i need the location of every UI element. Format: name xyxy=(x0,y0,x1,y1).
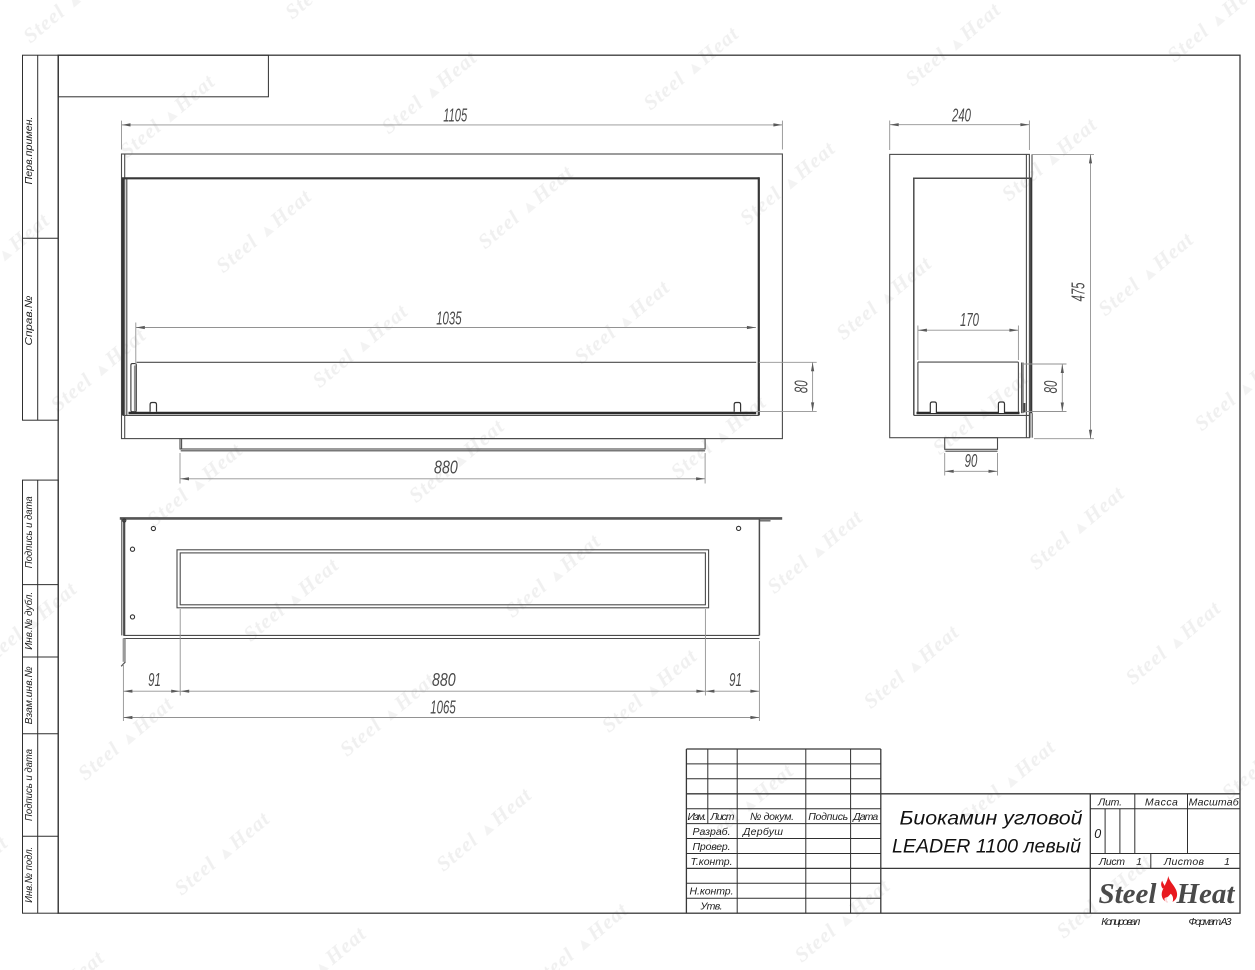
svg-text:Лист: Лист xyxy=(1098,856,1125,868)
svg-text:Масса: Масса xyxy=(1145,796,1178,808)
svg-text:Heat: Heat xyxy=(1176,878,1236,910)
svg-text:Подпись и дата: Подпись и дата xyxy=(23,496,35,568)
svg-text:Разраб.: Разраб. xyxy=(693,826,731,838)
svg-text:1035: 1035 xyxy=(436,308,462,328)
svg-text:91: 91 xyxy=(729,670,742,690)
svg-text:Изм.: Изм. xyxy=(688,811,707,823)
svg-text:Перв.примен.: Перв.примен. xyxy=(23,117,35,185)
svg-text:№ докум.: № докум. xyxy=(750,811,794,823)
svg-text:Формат А3: Формат А3 xyxy=(1189,916,1232,928)
svg-text:Дербуш: Дербуш xyxy=(742,826,783,838)
svg-text:Масштаб: Масштаб xyxy=(1189,796,1240,808)
svg-text:Утв.: Утв. xyxy=(700,901,723,913)
svg-text:91: 91 xyxy=(148,670,161,690)
svg-text:880: 880 xyxy=(434,457,458,477)
svg-text:Подпись: Подпись xyxy=(808,811,848,823)
svg-text:Биокамин угловой: Биокамин угловой xyxy=(900,808,1083,830)
svg-text:Т.контр.: Т.контр. xyxy=(691,856,733,868)
svg-text:475: 475 xyxy=(1069,282,1089,302)
svg-text:Steel: Steel xyxy=(1099,878,1158,910)
svg-text:240: 240 xyxy=(951,106,971,126)
svg-text:LEADER 1100 левый: LEADER 1100 левый xyxy=(892,835,1081,857)
svg-text:Подпись и дата: Подпись и дата xyxy=(23,749,35,821)
svg-text:1105: 1105 xyxy=(443,106,468,126)
svg-text:Взам.инв.№: Взам.инв.№ xyxy=(23,666,35,724)
svg-text:1: 1 xyxy=(1224,856,1230,868)
svg-text:Лист: Лист xyxy=(710,811,735,823)
svg-text:Листов: Листов xyxy=(1163,856,1205,868)
svg-text:Справ.№: Справ.№ xyxy=(23,296,35,346)
svg-text:Лит.: Лит. xyxy=(1097,796,1122,808)
svg-text:Инв.№ подл.: Инв.№ подл. xyxy=(23,847,35,903)
svg-text:80: 80 xyxy=(1041,381,1061,394)
svg-text:Провер.: Провер. xyxy=(693,841,731,853)
svg-text:Копировал: Копировал xyxy=(1101,916,1140,928)
svg-text:90: 90 xyxy=(965,451,978,471)
svg-text:880: 880 xyxy=(432,670,456,690)
svg-text:170: 170 xyxy=(960,310,979,330)
svg-text:Н.контр.: Н.контр. xyxy=(690,886,734,898)
svg-text:1065: 1065 xyxy=(430,698,456,718)
svg-text:Дата: Дата xyxy=(852,811,878,823)
svg-text:1: 1 xyxy=(1136,856,1142,868)
svg-text:0: 0 xyxy=(1094,827,1101,841)
svg-text:80: 80 xyxy=(792,380,812,393)
svg-text:Инв.№ дубл.: Инв.№ дубл. xyxy=(23,592,35,650)
